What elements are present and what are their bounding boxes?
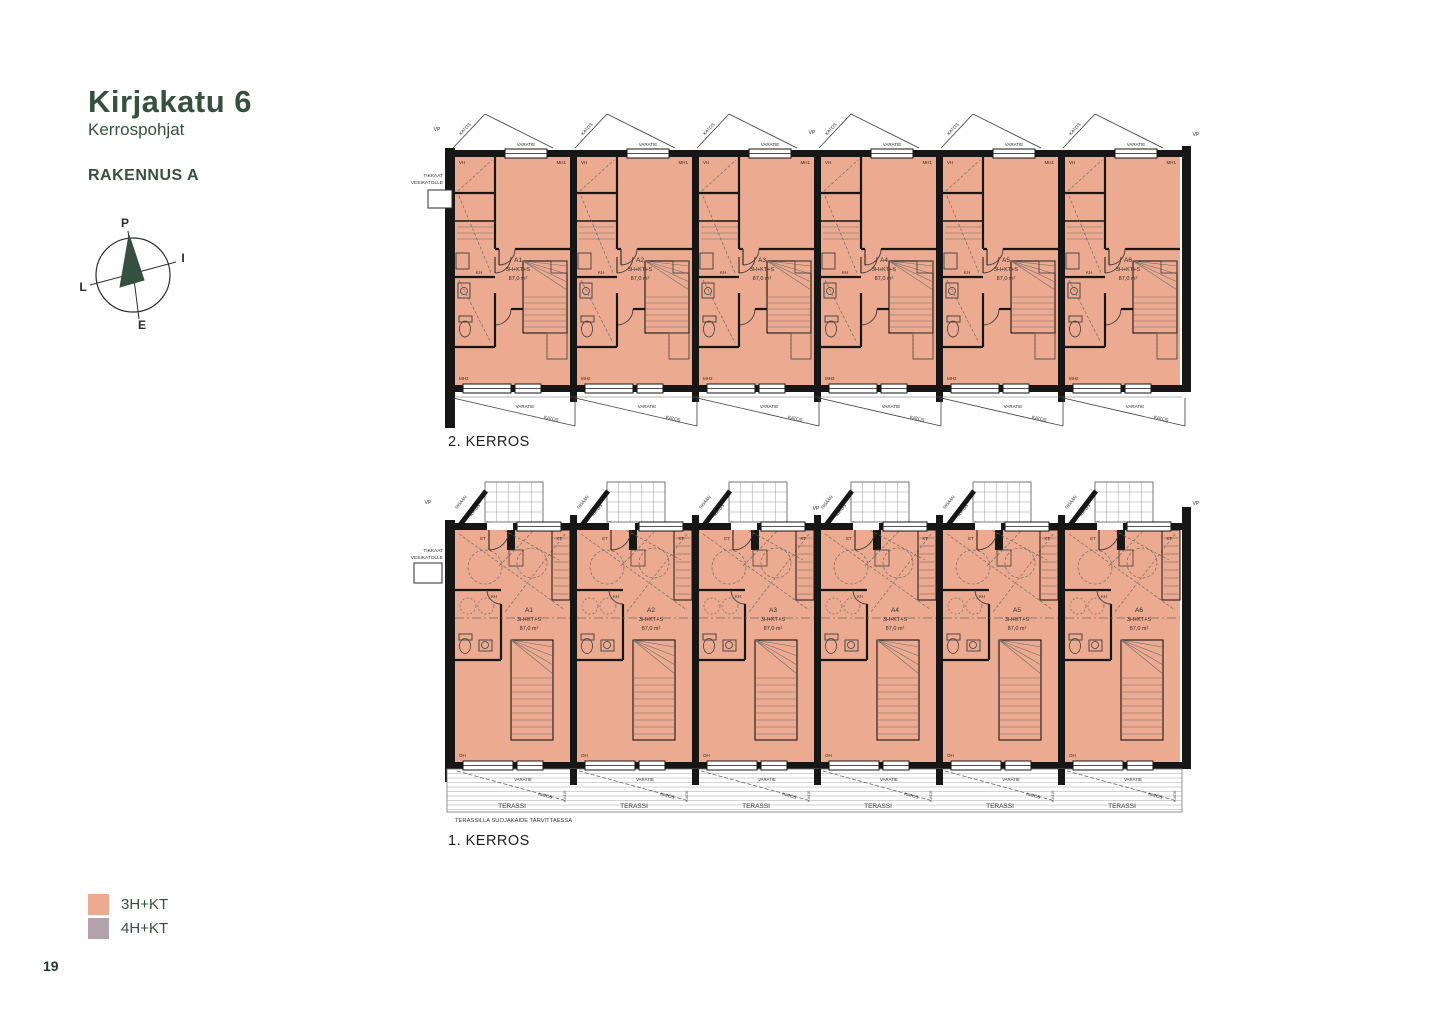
unit-type-label: 3H+KT+S: [1127, 617, 1151, 623]
unit-id-label: A1: [525, 607, 533, 614]
room-label-oh: OH: [459, 753, 466, 758]
room-label-kh: KH: [1101, 594, 1107, 599]
vp-marker: VP: [813, 506, 820, 512]
room-label-kt: KT: [1045, 536, 1051, 541]
room-label-et: ET: [724, 536, 730, 541]
sisaan-label: SISÄÄN: [942, 494, 956, 509]
room-label-kt: KT: [679, 536, 685, 541]
unit-id-label: A2: [647, 607, 655, 614]
katos-label: KATOS: [458, 122, 472, 136]
room-label-mh1: MH1: [800, 160, 810, 165]
room-label-mh2: MH2: [459, 376, 469, 381]
page-subtitle: Kerrospohjat: [88, 120, 184, 140]
katos-label: KATOS: [788, 414, 804, 422]
roof-ladder-note: TIKKAATVESIKATOLLE: [411, 548, 443, 583]
legend: 3H+KT 4H+KT: [88, 892, 168, 940]
terassi-label: TERASSI: [1108, 803, 1136, 810]
room-label-mh1: MH1: [1166, 160, 1176, 165]
room-label-vh: VH: [947, 160, 953, 165]
terassi-label: TERASSI: [742, 803, 770, 810]
ladder-label: TIKKAAT: [423, 173, 443, 179]
unit-area-label: 87,0 m²: [1130, 626, 1149, 632]
vp-marker: VP: [1193, 501, 1200, 507]
sisaan-label: SISÄÄN: [820, 494, 834, 509]
room-label-et: ET: [1090, 536, 1096, 541]
sisaan-label: SISÄÄN: [454, 494, 468, 509]
varatie-label: VARATIE: [758, 777, 776, 782]
katos-label: KATOS: [910, 414, 926, 422]
room-label-oh: OH: [581, 753, 588, 758]
unit-type-label: 3H+KT+S: [872, 267, 896, 273]
room-label-oh: OH: [825, 753, 832, 758]
kaide-label: KAIDE: [563, 790, 567, 802]
legend-label-4hkt: 4H+KT: [121, 920, 168, 937]
varatie-label: VARATIE: [882, 404, 901, 409]
terassi-label: TERASSI: [498, 803, 526, 810]
unit-type-label: 3H+KT+S: [628, 267, 652, 273]
varatie-label: VARATIE: [1005, 142, 1024, 147]
floor2-unit-a4: VHMH1KHMH2A43H+KT+S87,0 m²: [821, 150, 943, 402]
room-label-mh1: MH1: [1044, 160, 1054, 165]
unit-id-label: A3: [769, 607, 777, 614]
room-label-kh: KH: [598, 270, 604, 275]
room-label-et: ET: [968, 536, 974, 541]
room-label-kh: KH: [613, 594, 619, 599]
room-label-kh: KH: [720, 270, 726, 275]
floor2-unit-a3: VHMH1KHMH2A33H+KT+S87,0 m²: [699, 150, 821, 402]
kaide-label: KAIDE: [929, 790, 933, 802]
kaide-label: KAIDE: [807, 790, 811, 802]
unit-area-label: 87,0 m²: [631, 276, 650, 282]
varatie-label: VARATIE: [1004, 404, 1023, 409]
kaide-label: KAIDE: [685, 790, 689, 802]
compass-label-south: E: [138, 318, 146, 330]
kaide-label: KAIDE: [1173, 790, 1177, 802]
katos-label: KATOS: [666, 414, 682, 422]
katos-label: KATOS: [946, 122, 960, 136]
floor-1-caption: 1. KERROS: [448, 833, 530, 849]
katos-label: KATOS: [1068, 122, 1082, 136]
room-label-mh2: MH2: [581, 376, 591, 381]
floor2-unit-a2: VHMH1KHMH2A23H+KT+S87,0 m²: [577, 150, 699, 402]
room-label-kh: KH: [491, 594, 497, 599]
room-label-oh: OH: [703, 753, 710, 758]
varatie-label: VARATIE: [514, 777, 532, 782]
compass-label-east: I: [181, 251, 184, 265]
floor-plan-2-kerros: VHMH1KHMH2A13H+KT+S87,0 m²VHMH1KHMH2A23H…: [390, 100, 1205, 435]
varatie-label: VARATIE: [639, 142, 658, 147]
room-label-kh: KH: [735, 594, 741, 599]
ladder-label: VESIKATOLLE: [411, 180, 443, 186]
katos-label: KATOS: [702, 122, 716, 136]
room-label-kh: KH: [1086, 270, 1092, 275]
room-label-kt: KT: [923, 536, 929, 541]
legend-item-4hkt: 4H+KT: [88, 916, 168, 940]
varatie-label: VARATIE: [880, 777, 898, 782]
room-label-kh: KH: [842, 270, 848, 275]
room-label-vh: VH: [1069, 160, 1075, 165]
floor-2-plan-root: VHMH1KHMH2A13H+KT+S87,0 m²VHMH1KHMH2A23H…: [411, 114, 1200, 428]
room-label-oh: OH: [1069, 753, 1076, 758]
unit-id-label: A3: [758, 257, 766, 264]
room-label-kt: KT: [1167, 536, 1173, 541]
vp-marker: VP: [425, 500, 432, 506]
unit-area-label: 87,0 m²: [753, 276, 772, 282]
terassi-label: TERASSI: [864, 803, 892, 810]
unit-area-label: 87,0 m²: [1119, 276, 1138, 282]
sisaan-label: SISÄÄN: [576, 494, 590, 509]
terassi-label: TERASSI: [986, 803, 1014, 810]
floor1-unit-a3: KHA33H+KT+S87,0 m²ETKTOH: [699, 515, 821, 785]
room-label-et: ET: [602, 536, 608, 541]
floor1-unit-a4: KHA43H+KT+S87,0 m²ETKTOH: [821, 515, 943, 785]
room-label-mh2: MH2: [703, 376, 713, 381]
page-title: Kirjakatu 6: [88, 84, 252, 120]
room-label-kh: KH: [857, 594, 863, 599]
floor1-unit-a6: KHA63H+KT+S87,0 m²ETKTOH: [1065, 530, 1180, 762]
room-label-oh: OH: [947, 753, 954, 758]
sisaan-label: SISÄÄN: [1064, 494, 1078, 509]
katos-label: KATOS: [580, 122, 594, 136]
katos-label: KATOS: [1154, 414, 1170, 422]
room-label-kh: KH: [979, 594, 985, 599]
floor-2-caption: 2. KERROS: [448, 434, 530, 450]
varatie-label: VARATIE: [883, 142, 902, 147]
room-label-mh1: MH1: [922, 160, 932, 165]
legend-item-3hkt: 3H+KT: [88, 892, 168, 916]
unit-area-label: 87,0 m²: [764, 626, 783, 632]
room-label-mh1: MH1: [556, 160, 566, 165]
room-label-kh: KH: [964, 270, 970, 275]
room-label-kt: KT: [801, 536, 807, 541]
varatie-label: VARATIE: [517, 142, 536, 147]
sisaan-label: SISÄÄN: [698, 494, 712, 509]
compass-label-north: P: [121, 216, 129, 230]
room-label-vh: VH: [825, 160, 831, 165]
varatie-label: VARATIE: [1127, 142, 1146, 147]
room-label-mh2: MH2: [947, 376, 957, 381]
legend-swatch-4hkt: [88, 918, 109, 939]
unit-area-label: 87,0 m²: [875, 276, 894, 282]
unit-area-label: 87,0 m²: [997, 276, 1016, 282]
floor2-unit-a1: VHMH1KHMH2A13H+KT+S87,0 m²: [455, 150, 577, 402]
unit-area-label: 87,0 m²: [1008, 626, 1027, 632]
unit-area-label: 87,0 m²: [886, 626, 905, 632]
vp-marker: VP: [1193, 132, 1200, 138]
unit-id-label: A6: [1135, 607, 1143, 614]
room-label-et: ET: [846, 536, 852, 541]
varatie-label: VARATIE: [761, 142, 780, 147]
terassi-label: TERASSI: [620, 803, 648, 810]
unit-id-label: A4: [891, 607, 899, 614]
legend-label-3hkt: 3H+KT: [121, 896, 168, 913]
unit-type-label: 3H+KT+S: [761, 617, 785, 623]
room-label-vh: VH: [581, 160, 587, 165]
vp-marker: VP: [434, 127, 441, 133]
unit-type-label: 3H+KT+S: [506, 267, 530, 273]
unit-type-label: 3H+KT+S: [1116, 267, 1140, 273]
floor-1-plan-root: KHA13H+KT+S87,0 m²ETKTOHKHA23H+KT+S87,0 …: [411, 482, 1200, 824]
unit-id-label: A2: [636, 257, 644, 264]
ladder-label: VESIKATOLLE: [411, 555, 443, 561]
room-label-mh1: MH1: [678, 160, 688, 165]
room-label-kh: KH: [476, 270, 482, 275]
room-label-mh2: MH2: [825, 376, 835, 381]
floor-plan-1-kerros: KHA13H+KT+S87,0 m²ETKTOHKHA23H+KT+S87,0 …: [390, 460, 1205, 830]
varatie-label: VARATIE: [516, 404, 535, 409]
unit-id-label: A6: [1124, 257, 1132, 264]
varatie-label: VARATIE: [1124, 777, 1142, 782]
varatie-label: VARATIE: [638, 404, 657, 409]
unit-type-label: 3H+KT+S: [750, 267, 774, 273]
varatie-label: VARATIE: [760, 404, 779, 409]
room-label-mh2: MH2: [1069, 376, 1079, 381]
floor1-unit-a1: KHA13H+KT+S87,0 m²ETKTOH: [455, 515, 577, 785]
compass-label-west: L: [79, 280, 86, 294]
ladder-label: TIKKAAT: [423, 548, 443, 554]
varatie-label: VARATIE: [1002, 777, 1020, 782]
room-label-vh: VH: [703, 160, 709, 165]
unit-type-label: 3H+KT+S: [994, 267, 1018, 273]
katos-label: KATOS: [824, 122, 838, 136]
unit-id-label: A4: [880, 257, 888, 264]
kaide-label: KAIDE: [1051, 790, 1055, 802]
unit-type-label: 3H+KT+S: [1005, 617, 1029, 623]
unit-area-label: 87,0 m²: [509, 276, 528, 282]
vp-marker: VP: [809, 130, 816, 136]
unit-type-label: 3H+KT+S: [639, 617, 663, 623]
floor1-unit-a2: KHA23H+KT+S87,0 m²ETKTOH: [577, 515, 699, 785]
floor2-unit-a6: VHMH1KHMH2A63H+KT+S87,0 m²: [1065, 157, 1180, 385]
unit-id-label: A1: [514, 257, 522, 264]
varatie-label: VARATIE: [1126, 404, 1145, 409]
unit-area-label: 87,0 m²: [520, 626, 539, 632]
katos-label: KATOS: [1032, 414, 1048, 422]
floor2-unit-a5: VHMH1KHMH2A53H+KT+S87,0 m²: [943, 150, 1065, 402]
building-label: RAKENNUS A: [88, 167, 199, 185]
unit-area-label: 87,0 m²: [642, 626, 661, 632]
varatie-label: VARATIE: [636, 777, 654, 782]
unit-type-label: 3H+KT+S: [517, 617, 541, 623]
page-number: 19: [43, 958, 59, 974]
room-label-kt: KT: [557, 536, 563, 541]
legend-swatch-3hkt: [88, 894, 109, 915]
compass-needle: [120, 235, 144, 287]
unit-id-label: A5: [1013, 607, 1021, 614]
room-label-et: ET: [480, 536, 486, 541]
katos-label: KATOS: [544, 414, 560, 422]
unit-id-label: A5: [1002, 257, 1010, 264]
floor1-unit-a5: KHA53H+KT+S87,0 m²ETKTOH: [943, 515, 1065, 785]
room-label-vh: VH: [459, 160, 465, 165]
compass-rose: P I L E: [78, 215, 188, 330]
terrace-note: TERASSILLA SUOJAKAIDE TARVITTAESSA: [455, 818, 572, 824]
unit-type-label: 3H+KT+S: [883, 617, 907, 623]
